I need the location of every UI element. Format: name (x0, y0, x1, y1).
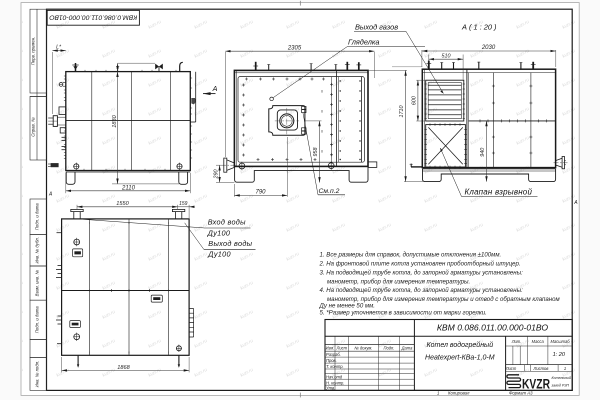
svg-text:Гляделка: Гляделка (348, 38, 380, 47)
svg-text:Изм.: Изм. (326, 346, 335, 351)
svg-text:КВМ 0.086.011.00.000-01ВО: КВМ 0.086.011.00.000-01ВО (437, 323, 549, 333)
svg-text:Т. контр.: Т. контр. (326, 364, 344, 369)
svg-text:завод РЗП: завод РЗП (551, 384, 570, 388)
svg-text:Утв.: Утв. (326, 386, 335, 391)
svg-text:958: 958 (313, 148, 319, 157)
svg-text:Формат А3: Формат А3 (509, 391, 533, 396)
svg-text:Масса: Масса (532, 339, 545, 344)
svg-text:См.п.2: См.п.2 (319, 188, 340, 195)
svg-text:А: А (212, 84, 218, 93)
svg-text:Копировал: Копировал (448, 391, 470, 396)
svg-text:Перв. примен.: Перв. примен. (31, 37, 36, 66)
svg-text:Ду100: Ду100 (207, 228, 231, 237)
svg-text:Инв. № дубл.: Инв. № дубл. (35, 237, 40, 263)
svg-text:Подп. и дата: Подп. и дата (35, 306, 40, 334)
svg-text:Клапан взрывной: Клапан взрывной (465, 188, 533, 197)
svg-text:Лист: Лист (336, 346, 348, 351)
svg-text:1868: 1868 (117, 365, 130, 371)
svg-text:№ докум.: № докум. (354, 346, 372, 351)
svg-text:1830: 1830 (112, 114, 118, 127)
svg-text:Листов: Листов (533, 366, 550, 371)
svg-text:Вход воды: Вход воды (208, 217, 246, 226)
svg-text:Взам. инв. №: Взам. инв. № (35, 269, 40, 296)
svg-text:Подп. и дата: Подп. и дата (35, 203, 40, 231)
svg-text:159: 159 (179, 201, 188, 207)
svg-text:Лит.: Лит. (511, 339, 522, 344)
svg-text:КВМ.0.086.011.00.000-01ВО: КВМ.0.086.011.00.000-01ВО (49, 13, 138, 20)
svg-text:Разраб.: Разраб. (326, 352, 341, 357)
svg-text:Справ. №: Справ. № (31, 117, 36, 137)
svg-text:Пров.: Пров. (326, 358, 337, 363)
svg-text:2110: 2110 (121, 185, 136, 191)
svg-text:Дата: Дата (401, 346, 414, 351)
svg-text:3. На подводящей трубе котла,: 3. На подводящей трубе котла, до запорно… (320, 270, 524, 277)
svg-text:Нач.отд: Нач.отд (326, 374, 343, 379)
svg-text:Выход воды: Выход воды (208, 239, 252, 248)
svg-text:Ду100: Ду100 (207, 250, 231, 259)
svg-text:Heatexpert-КВа-1,0-М: Heatexpert-КВа-1,0-М (425, 354, 495, 361)
svg-text:790: 790 (255, 190, 266, 196)
svg-text:510: 510 (442, 53, 451, 59)
svg-text:манометр, прибор для измерения: манометр, прибор для измерения температу… (327, 278, 470, 285)
svg-text:2030: 2030 (481, 45, 496, 51)
svg-text:Подп.: Подп. (384, 346, 395, 351)
svg-text:Инв. № подл.: Инв. № подл. (35, 361, 40, 388)
svg-text:600: 600 (412, 96, 418, 105)
svg-text:5. *Размер уточняется в зависи: 5. *Размер уточняется в зависимости от м… (320, 309, 487, 316)
svg-text:1710: 1710 (399, 106, 405, 118)
svg-text:А: А (48, 192, 53, 198)
svg-text:Масштаб: Масштаб (550, 339, 570, 344)
svg-text:Выход газов: Выход газов (355, 23, 398, 32)
svg-text:А ( 1 : 20 ): А ( 1 : 20 ) (461, 23, 497, 32)
svg-text:Котел водогрейный: Котел водогрейный (427, 341, 494, 349)
svg-text:4. На подводящей трубе котла,: 4. На подводящей трубе котла, до запорно… (320, 287, 524, 294)
svg-text:KVZR: KVZR (522, 376, 550, 391)
svg-text:1: 1 (564, 366, 566, 371)
svg-text:А: А (573, 200, 578, 206)
svg-text:1: 20: 1: 20 (553, 352, 566, 358)
svg-text:1550: 1550 (116, 201, 129, 207)
svg-text:1. Все размеры для справок, до: 1. Все размеры для справок, допустимые о… (320, 252, 502, 259)
svg-text:Лист: Лист (505, 366, 517, 371)
svg-text:2305: 2305 (287, 45, 302, 51)
svg-text:2. На фронтовой плите котла ус: 2. На фронтовой плите котла установлен п… (319, 261, 521, 268)
svg-text:940: 940 (480, 148, 486, 157)
svg-text:290: 290 (213, 170, 219, 180)
svg-text:Котельный: Котельный (552, 376, 572, 380)
